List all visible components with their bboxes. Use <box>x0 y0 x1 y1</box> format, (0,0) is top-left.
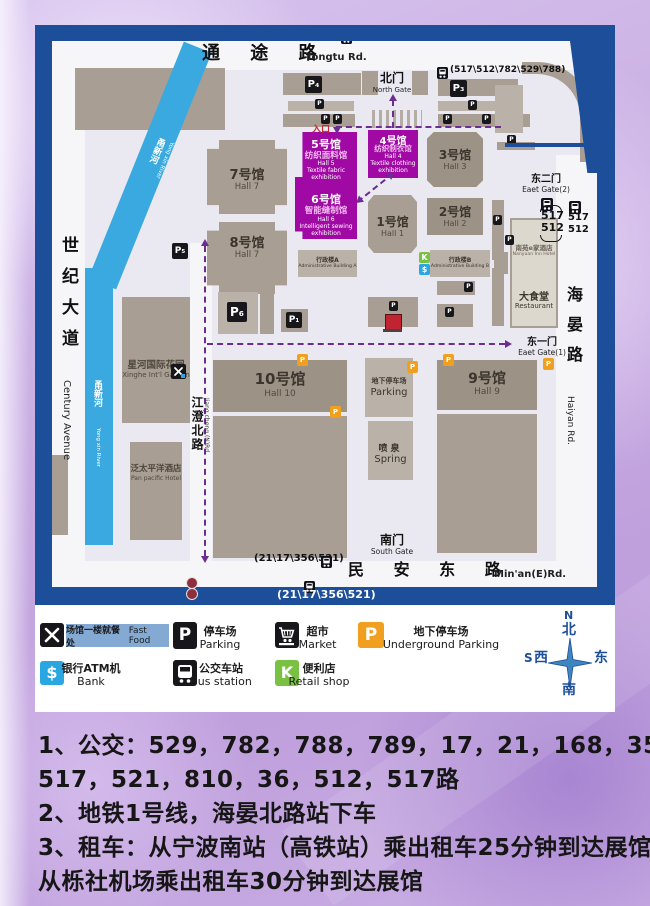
road-label-tongtu-en: Tongtu Rd. <box>306 52 367 64</box>
road-label-jiangcheng-en: Jiang cheng (N)Rd. <box>203 398 210 454</box>
river-label-vertical-cn: 甬新河 <box>91 380 104 407</box>
administrative-building-a: 行政楼A Administrative Building A <box>298 250 357 277</box>
legend-bank: 银行ATM机 Bank <box>60 663 122 688</box>
map-frame-left <box>35 25 52 605</box>
legend-market: 超市 Market <box>290 626 345 651</box>
parking-marker: P <box>445 307 454 317</box>
note-line-1: 1、公交：529，782，788，789，17，21，168，356， <box>38 726 650 760</box>
east-gate-2: 东二门 Eaet Gate(2) <box>518 174 574 194</box>
bus-lines-512: 512 <box>541 222 564 235</box>
legend-parking: 停车场 Parking <box>190 626 250 651</box>
hall-8: 8号馆 Hall 7 <box>207 222 287 294</box>
bank-atm-marker: $ <box>419 264 430 275</box>
compass-east: 东 <box>594 650 608 666</box>
compass-n: N <box>564 610 573 623</box>
road-label-haiyan-en: Haiyan Rd. <box>565 396 575 445</box>
stamp-icon <box>186 588 198 600</box>
parking-p4-marker: P₄ <box>305 76 322 93</box>
road-label-minan-cn: 民 安 东 路 <box>348 561 513 579</box>
parking-marker: P <box>315 99 324 109</box>
underground-parking-marker: P <box>443 354 454 366</box>
compass-west-letter: S <box>524 652 533 666</box>
parking-p1-marker: P₁ <box>286 312 302 328</box>
retail-shop-marker: K <box>419 252 430 263</box>
note-line-2: 517，521，810，36，512，517路 <box>38 760 460 794</box>
parking-marker: P <box>482 114 491 124</box>
compass-west: 西 <box>534 650 548 666</box>
building-northwest-block <box>75 68 225 130</box>
route-arrow-down <box>201 556 209 563</box>
bus-lines-517: 517 <box>568 212 589 224</box>
parking-marker: P <box>443 114 452 124</box>
compass-north: 北 <box>562 622 576 638</box>
entrance-arrow <box>333 127 341 134</box>
parking-marker: P <box>505 235 514 245</box>
route-dashed-north <box>336 126 501 128</box>
legend-fast-food: 场馆一楼就餐处 Fast Food <box>66 624 169 647</box>
hall-3: 3号馆 Hall 3 <box>427 132 483 187</box>
route-arrow-right <box>505 340 512 348</box>
legend-underground-parking: 地下停车场 Underground Parking <box>382 626 500 651</box>
hall-6-subtitle: 智能缝制馆 <box>295 204 357 216</box>
pan-pacific-hotel: 泛太平洋酒店 Pan pacific Hotel <box>130 442 182 540</box>
east-road-divider <box>505 143 591 147</box>
parking-marker: P <box>464 282 473 292</box>
map-frame-right <box>597 25 615 605</box>
bus-stop-label-north-inner: (517\512\782\529\788) <box>450 65 565 75</box>
entrance-label: 入口 <box>312 125 330 135</box>
fast-food-legend-icon <box>40 623 64 651</box>
parking-marker: P <box>333 114 342 124</box>
red-landmark-base <box>383 329 402 332</box>
building-east-strip <box>492 200 504 260</box>
building-north-gate-right <box>412 71 428 95</box>
spring-block: 喷泉 Spring <box>368 421 413 480</box>
compass-south: 南 <box>562 682 576 698</box>
parking-marker: P <box>321 114 330 124</box>
building-east-strip <box>492 268 504 326</box>
road-label-haiyan-cn: 海晏路 <box>561 286 585 376</box>
building-mid <box>260 288 274 334</box>
bus-stop-label-south-band: (21\17\356\521) <box>277 589 376 602</box>
hall-7: 7号馆 Hall 7 <box>207 140 287 214</box>
north-gate-arrow <box>389 94 397 101</box>
underground-parking-legend-icon: P <box>358 622 384 648</box>
hall-9: 9号馆 Hall 9 <box>437 360 537 410</box>
note-line-5: 从栎社机场乘出租车30分钟到达展馆 <box>38 862 424 896</box>
building-p4-parking <box>283 73 361 95</box>
legend-retail: 便利店 Retail shop <box>288 663 350 688</box>
parking-marker: P <box>493 215 502 225</box>
red-landmark-marker <box>385 314 402 330</box>
building-west-strip <box>52 455 68 535</box>
underground-parking-marker: P <box>330 406 341 418</box>
hall-5-6: 5号馆 纺织面料馆 Hall 5 Textile fabric exhibiti… <box>295 132 357 239</box>
north-gate: 北门 North Gate <box>370 72 414 94</box>
background-light-strip <box>0 0 30 906</box>
parking-p3-marker: P₃ <box>450 80 467 97</box>
administrative-building-b: 行政楼B Administrative Building B <box>430 250 490 277</box>
parking-p5-marker: P₅ <box>172 243 188 259</box>
note-line-3: 2、地铁1号线，海晏北路站下车 <box>38 794 377 828</box>
bus-stop-icon <box>321 553 332 572</box>
parking-p6-marker: P₆ <box>227 302 247 322</box>
screenshot-root: 7号馆 Hall 7 8号馆 Hall 7 5号馆 纺织面料馆 Hall 5 T… <box>0 0 650 906</box>
map-frame-top <box>35 25 615 41</box>
south-gate: 南门 South Gate <box>364 534 420 556</box>
road-label-century-en: Century Avenue <box>61 380 72 460</box>
underground-parking-block: 地下停车场 Parking <box>365 358 413 417</box>
hall-1: 1号馆 Hall 1 <box>368 195 417 253</box>
road-label-century-cn: 世纪大道 <box>56 236 81 360</box>
route-dashed-east-gate1 <box>207 343 505 345</box>
building-south-big-west <box>213 416 347 558</box>
hall-10: 10号馆 Hall 10 <box>213 360 347 412</box>
underground-parking-marker: P <box>543 358 554 370</box>
legend-bus-station: 公交车站 Bus station <box>190 663 252 688</box>
xinghe-garden: 星河国际花园 Xinghe Int'l Garden <box>122 297 190 423</box>
building-mid <box>437 304 473 327</box>
fast-food-icon <box>171 364 186 379</box>
parking-marker: P <box>468 100 477 110</box>
parking-marker: P <box>389 301 398 311</box>
underground-parking-marker: P <box>407 361 418 373</box>
river-label-vertical-en: Yong xin River <box>95 428 101 467</box>
building-small <box>494 252 508 274</box>
bus-stop-icon <box>437 64 448 83</box>
route-arrow-up <box>201 239 209 246</box>
restaurant-label: 大食堂 <box>512 288 556 303</box>
building-south-big-east <box>437 414 537 553</box>
north-gate-route <box>392 100 394 128</box>
bus-lines-bracket <box>540 235 562 242</box>
underground-parking-marker: P <box>297 354 308 366</box>
road-label-minan-en: Min'an(E)Rd. <box>494 569 566 581</box>
hall-2: 2号馆 Hall 2 <box>427 198 483 235</box>
note-line-4: 3、租车：从宁波南站（高铁站）乘出租车25分钟到达展馆， <box>38 828 650 862</box>
bus-lines-512: 512 <box>568 224 589 236</box>
